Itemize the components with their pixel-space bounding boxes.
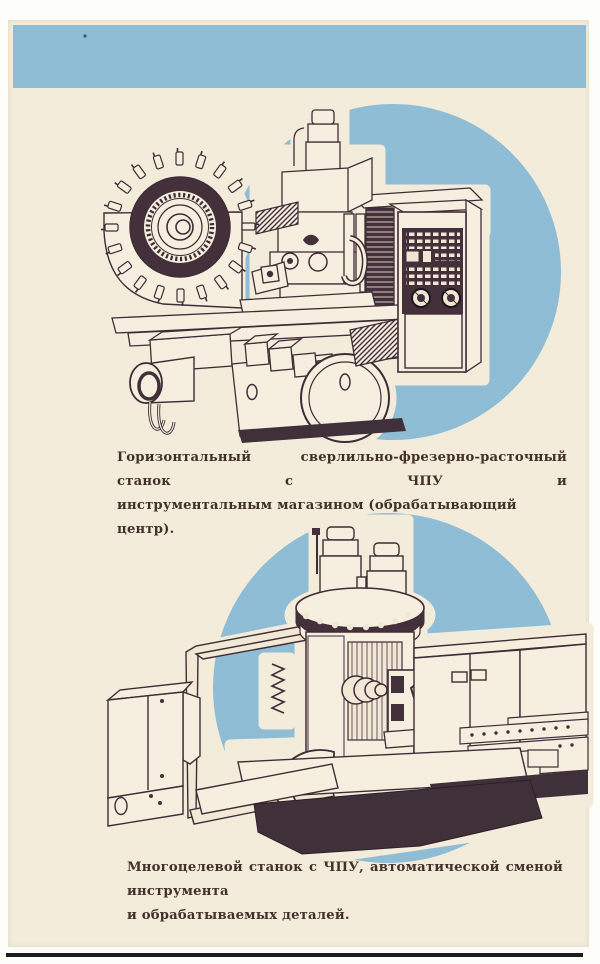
figure-1-caption-line-2: инструментальным магазином (обрабатывающ… [117, 494, 567, 542]
bottom-rule [6, 953, 583, 957]
ink-speck [83, 34, 86, 37]
scanned-book-page: Горизонтальный сверлильно-фрезерно-расто… [0, 0, 600, 964]
figure-2-caption-line-1: Многоцелевой станок с ЧПУ, автоматическо… [127, 856, 563, 904]
figure-1-caption-line-1: Горизонтальный сверлильно-фрезерно-расто… [117, 446, 567, 494]
control-cabinet [390, 200, 481, 372]
figure-2-caption-line-2: и обрабатываемых деталей. [127, 904, 563, 928]
figure-1-caption: Горизонтальный сверлильно-фрезерно-расто… [117, 446, 567, 542]
header-band [13, 25, 586, 88]
figure-2-caption: Многоцелевой станок с ЧПУ, автоматическо… [127, 856, 563, 928]
